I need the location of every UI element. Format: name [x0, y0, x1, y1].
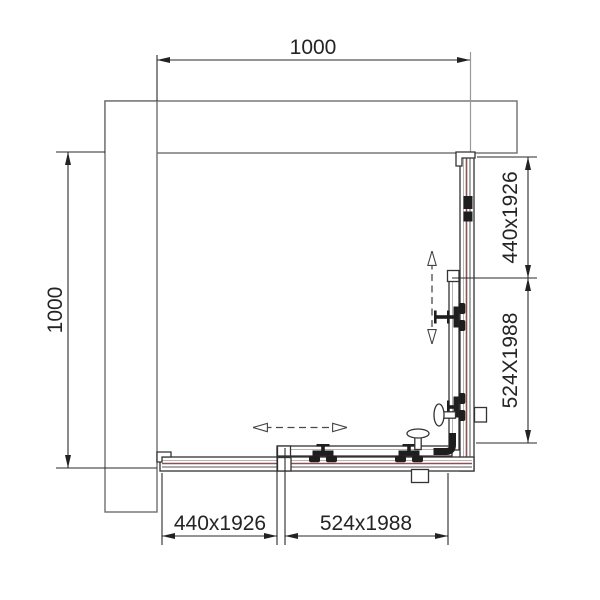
door-latch: [464, 196, 473, 222]
door-cap: [278, 446, 291, 456]
dim-label-right-upper: 440x1926: [499, 171, 522, 263]
slide-direction-arrows: [253, 251, 432, 428]
enclosure-frame: [157, 152, 487, 483]
corner-elbow: [434, 433, 453, 452]
right-sliding-door: [448, 271, 460, 451]
dim-label-bottom-left: 440x1926: [174, 512, 266, 535]
stopper-block: [475, 408, 487, 423]
dim-label-right-lower: 524X1988: [499, 313, 522, 409]
dim-label-top: 1000: [290, 36, 337, 59]
door-guide-block: [278, 458, 292, 472]
door-cap: [448, 271, 460, 282]
technical-drawing-canvas: 1000 1000: [0, 0, 600, 600]
shower-enclosure-plan-drawing: 1000 1000: [0, 0, 600, 600]
dim-label-bottom-right: 524x1988: [320, 512, 412, 535]
dim-label-left: 1000: [44, 287, 67, 334]
top-wall: [105, 101, 517, 153]
left-wall: [105, 101, 157, 512]
stopper-block: [412, 470, 429, 483]
